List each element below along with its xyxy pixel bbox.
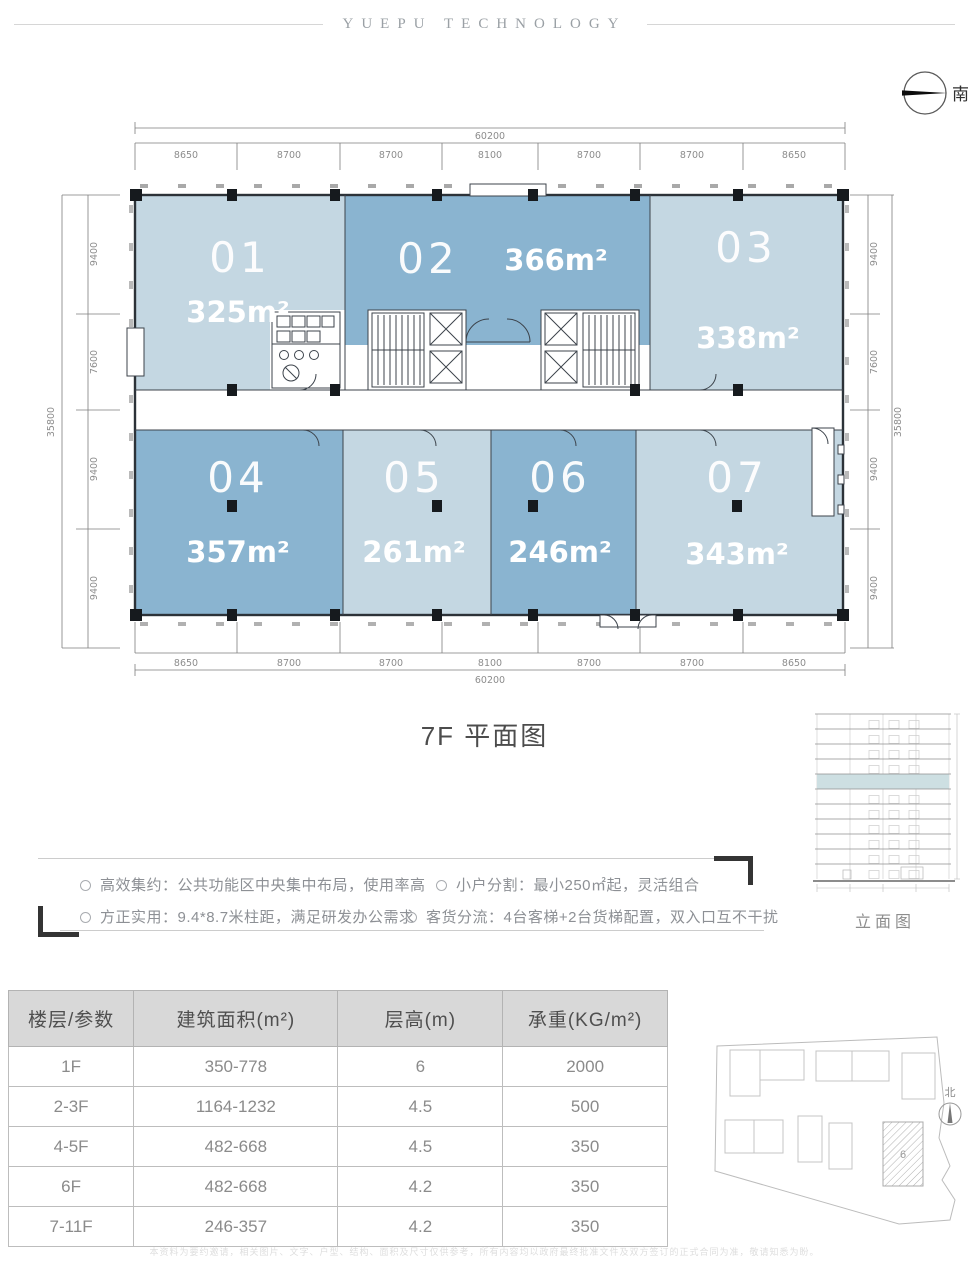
cell-floor: 1F	[9, 1047, 134, 1087]
cell-load: 350	[503, 1167, 668, 1207]
unit-01-number: 01	[209, 233, 270, 282]
dim-top-total: 60200	[475, 131, 505, 142]
feature-corner-top-right	[714, 856, 753, 885]
dim-right-seg: 7600	[869, 350, 880, 374]
bullet-circle-icon	[80, 880, 91, 891]
dim-left-seg: 7600	[89, 350, 100, 374]
stair-elevator-core-left	[368, 310, 466, 390]
unit-03-number: 03	[715, 223, 776, 272]
dim-top-seg: 8700	[577, 150, 601, 161]
unit-06-area: 246m²	[508, 535, 611, 569]
feature-rule-top	[38, 858, 746, 859]
elevation-caption: 立面图	[805, 908, 965, 932]
dim-bottom-seg: 8650	[782, 658, 806, 669]
table-row: 4-5F482-6684.5350	[9, 1127, 668, 1167]
cell-load: 350	[503, 1127, 668, 1167]
unit-01-area: 325m²	[186, 295, 289, 329]
dim-bottom-total: 60200	[475, 675, 505, 686]
unit-02-number: 02	[397, 234, 458, 283]
footer-disclaimer: 本资料为要约邀请，相关图片、文字、户型、结构、面积及尺寸仅供参考，所有内容均以政…	[0, 1245, 969, 1258]
bullet-circle-icon	[436, 880, 447, 891]
unit-07-number: 07	[706, 453, 767, 502]
cell-floor: 2-3F	[9, 1087, 134, 1127]
unit-04-number: 04	[207, 453, 268, 502]
dim-left-seg: 9400	[89, 457, 100, 481]
table-row: 1F350-77862000	[9, 1047, 668, 1087]
dim-bottom-seg: 8700	[577, 658, 601, 669]
dim-top-seg: 8650	[782, 150, 806, 161]
header-line-left	[14, 24, 323, 25]
dim-top-seg: 8700	[277, 150, 301, 161]
cell-area: 246-357	[134, 1207, 338, 1247]
unit-06-number: 06	[529, 453, 590, 502]
feature-item: 客货分流：4台客梯+2台货梯配置，双入口互不干扰	[406, 906, 778, 927]
spec-col-header: 楼层/参数	[9, 991, 134, 1047]
dim-bottom-seg: 8700	[379, 658, 403, 669]
cell-load: 350	[503, 1207, 668, 1247]
site-building-number: 6	[900, 1149, 906, 1161]
feature-item: 高效集约：公共功能区中央集中布局，使用率高	[80, 874, 426, 895]
cell-floor: 7-11F	[9, 1207, 134, 1247]
dim-top-seg: 8650	[174, 150, 198, 161]
dim-right-total: 35800	[893, 407, 904, 437]
elevation-diagram	[805, 702, 965, 902]
cell-area: 1164-1232	[134, 1087, 338, 1127]
cell-height: 4.5	[338, 1087, 503, 1127]
cell-area: 482-668	[134, 1167, 338, 1207]
floor-plan: 60200 8650 8700 8700 8100 8700 8700 8650…	[0, 110, 969, 700]
cell-area: 350-778	[134, 1047, 338, 1087]
dim-bottom-ticks	[135, 622, 845, 653]
compass-south-label: 南	[952, 85, 969, 104]
feature-rule-bottom	[60, 930, 764, 931]
bullet-circle-icon	[80, 912, 91, 923]
cell-area: 482-668	[134, 1127, 338, 1167]
brand-title: YUEPU TECHNOLOGY	[343, 16, 627, 33]
cell-floor: 4-5F	[9, 1127, 134, 1167]
unit-02-area: 366m²	[504, 243, 607, 277]
table-row: 7-11F246-3574.2350	[9, 1207, 668, 1247]
dim-left-total: 35800	[46, 407, 57, 437]
cell-height: 4.2	[338, 1167, 503, 1207]
cell-load: 500	[503, 1087, 668, 1127]
spec-table: 楼层/参数 建筑面积(m²) 层高(m) 承重(KG/m²) 1F350-778…	[8, 990, 668, 1247]
cell-height: 4.5	[338, 1127, 503, 1167]
feature-text: 小户分割：最小250㎡起，灵活组合	[456, 877, 700, 894]
feature-text: 客货分流：4台客梯+2台货梯配置，双入口互不干扰	[426, 909, 778, 926]
unit-03-area: 338m²	[696, 321, 799, 355]
feature-corner-bottom-left	[38, 906, 79, 937]
header-line-right	[647, 24, 956, 25]
site-plan: 6 北	[703, 1028, 965, 1233]
dim-left-seg: 9400	[89, 576, 100, 600]
header: YUEPU TECHNOLOGY	[0, 16, 969, 33]
dim-right-seg: 9400	[869, 576, 880, 600]
bullet-circle-icon	[406, 912, 417, 923]
dim-left-seg: 9400	[89, 242, 100, 266]
unit-07-area: 343m²	[685, 537, 788, 571]
unit-05-area: 261m²	[362, 535, 465, 569]
north-label: 北	[945, 1086, 956, 1099]
highlighted-floor-band	[817, 774, 949, 789]
dim-top-seg: 8100	[478, 150, 502, 161]
dim-top-seg: 8700	[379, 150, 403, 161]
feature-block: 高效集约：公共功能区中央集中布局，使用率高 小户分割：最小250㎡起，灵活组合 …	[38, 850, 764, 942]
feature-text: 方正实用：9.4*8.7米柱距，满足研发办公需求	[100, 909, 415, 926]
dim-bottom-seg: 8700	[277, 658, 301, 669]
stair-elevator-core-right	[541, 310, 639, 390]
feature-text: 高效集约：公共功能区中央集中布局，使用率高	[100, 877, 426, 894]
feature-item: 方正实用：9.4*8.7米柱距，满足研发办公需求	[80, 906, 415, 927]
left-service-niche	[127, 328, 144, 376]
spec-col-header: 承重(KG/m²)	[503, 991, 668, 1047]
bottom-entrance-porch	[600, 615, 656, 627]
cell-floor: 6F	[9, 1167, 134, 1207]
dim-top-seg: 8700	[680, 150, 704, 161]
feature-item: 小户分割：最小250㎡起，灵活组合	[436, 874, 700, 895]
spec-col-header: 建筑面积(m²)	[134, 991, 338, 1047]
cell-height: 4.2	[338, 1207, 503, 1247]
unit-05-number: 05	[383, 453, 444, 502]
table-row: 2-3F1164-12324.5500	[9, 1087, 668, 1127]
dim-bottom-seg: 8100	[478, 658, 502, 669]
cell-load: 2000	[503, 1047, 668, 1087]
table-row: 6F482-6684.2350	[9, 1167, 668, 1207]
dim-bottom-seg: 8700	[680, 658, 704, 669]
spec-col-header: 层高(m)	[338, 991, 503, 1047]
page: YUEPU TECHNOLOGY 南 60200 8650 8700 8700 …	[0, 0, 969, 1280]
cell-height: 6	[338, 1047, 503, 1087]
spec-table-header-row: 楼层/参数 建筑面积(m²) 层高(m) 承重(KG/m²)	[9, 991, 668, 1047]
dim-right-seg: 9400	[869, 242, 880, 266]
dim-bottom-seg: 8650	[174, 658, 198, 669]
dim-right-seg: 9400	[869, 457, 880, 481]
unit-04-area: 357m²	[186, 535, 289, 569]
